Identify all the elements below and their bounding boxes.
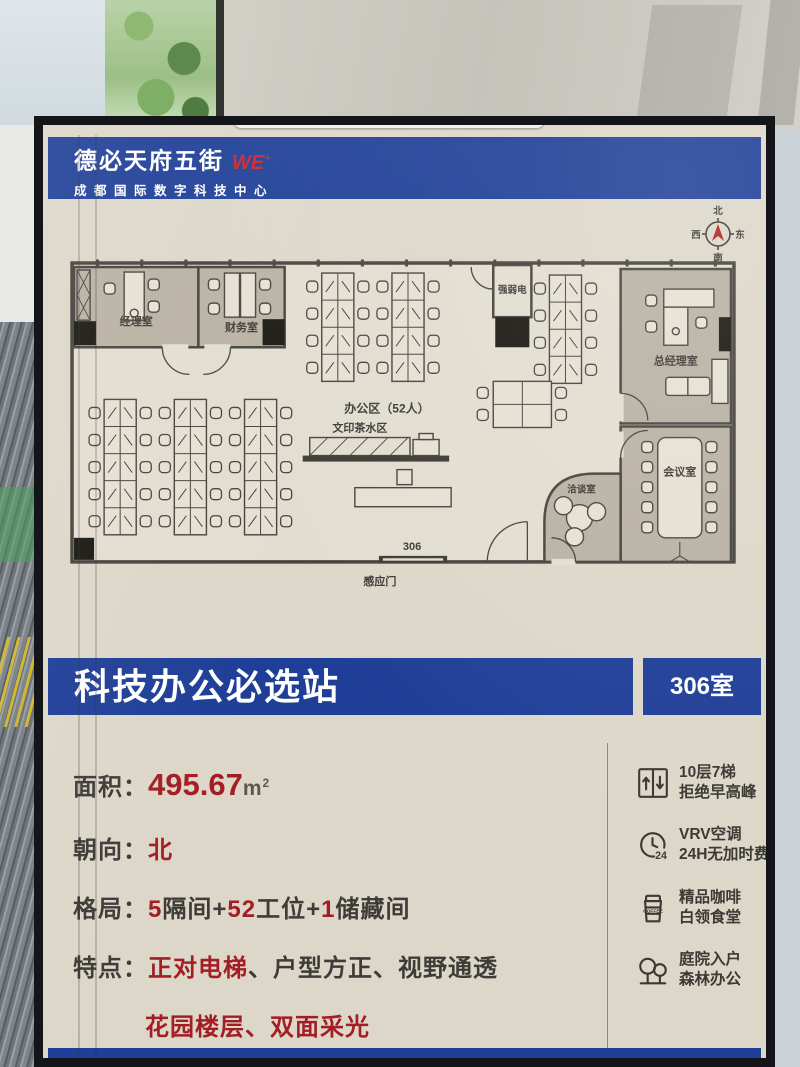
vertical-divider: [607, 743, 608, 1058]
reflection: [757, 0, 800, 125]
layout-label: 格局：: [73, 896, 148, 923]
features-row-2: 花园楼层、双面采光: [145, 1007, 370, 1042]
poster: 德必天府五街WE+ 成都国际数字科技中心 北 西 东 南: [43, 125, 766, 1058]
amenity-text: 森林办公: [679, 970, 741, 990]
carpet-yellow-stripe: [0, 637, 34, 727]
sensor-door-label: 感应门: [363, 574, 396, 588]
compass-icon: 北 西 东 南: [688, 203, 748, 263]
amenity-text: 庭院入户: [679, 950, 741, 970]
brand-mark: WE+: [232, 152, 271, 174]
room-label-manager: 经理室: [120, 314, 153, 328]
room-label-print-tea: 文印茶水区: [332, 421, 387, 435]
window-with-trees: [105, 0, 218, 130]
amenity-text: 24H无加时费: [679, 845, 766, 865]
room-label-negotiation: 洽谈室: [567, 484, 596, 496]
amenity-garden: 庭院入户森林办公: [636, 950, 762, 990]
coffee-icon: COFFEE: [636, 891, 670, 925]
coffee-cup-label: COFFEE: [643, 908, 664, 914]
amenity-text: 白领食堂: [679, 908, 741, 928]
amenity-text: 精品咖啡: [679, 888, 741, 908]
bottom-band: [48, 1048, 761, 1058]
title-band: 科技办公必选站: [48, 658, 633, 715]
wall-pillar: [0, 125, 34, 325]
floor-plan: 经理室 财务室 办公区（52人） 强弱电 总经理室 会议室 洽谈室 文印茶水区 …: [66, 259, 744, 600]
room-number-band: 306室: [643, 658, 761, 715]
room-label-meeting: 会议室: [663, 465, 696, 479]
header-subtitle: 成都国际数字科技中心: [74, 180, 761, 199]
clock-24-icon: 24: [636, 828, 670, 862]
brand-logo: 德必天府五街WE+: [74, 145, 761, 176]
poster-seam: [78, 135, 80, 1058]
room-label-office-area: 办公区（52人）: [344, 400, 429, 415]
orientation-label: 朝向：: [73, 837, 148, 864]
features-label: 特点：: [73, 955, 148, 982]
elevator-icon: [636, 766, 670, 800]
room-number-label: 306: [403, 541, 421, 553]
poster-frame: 德必天府五街WE+ 成都国际数字科技中心 北 西 东 南: [34, 116, 775, 1067]
orientation-row: 朝向：北: [73, 830, 173, 865]
brand-name: 德必天府五街: [74, 148, 224, 174]
window-frame: [216, 0, 224, 130]
amenities-list: 10层7梯拒绝早高峰 24 VRV空调24H无加时费 COFFEE 精品咖啡白领…: [636, 763, 762, 1012]
poster-seam: [95, 135, 97, 1058]
orientation-value: 北: [148, 837, 173, 864]
amenity-text: 拒绝早高峰: [679, 783, 757, 803]
compass-needle: [712, 224, 724, 241]
area-row: 面积：495.67m2: [73, 767, 270, 803]
header-band: 德必天府五街WE+ 成都国际数字科技中心: [48, 137, 761, 199]
amenity-text: 10层7梯: [679, 763, 757, 783]
striped-carpet: [0, 322, 34, 1067]
room-label-finance: 财务室: [224, 320, 258, 334]
area-label: 面积：: [73, 774, 148, 801]
area-unit: m2: [243, 777, 270, 800]
amenity-coffee: COFFEE 精品咖啡白领食堂: [636, 888, 762, 928]
glass-whiteboard: [224, 0, 800, 130]
compass-north-label: 北: [713, 205, 723, 217]
compass-east-label: 东: [735, 229, 745, 241]
trees-icon: [636, 953, 670, 987]
carpet-green-stripe: [0, 487, 34, 562]
room-label-utility: 强弱电: [498, 284, 527, 296]
features-row: 特点：正对电梯、户型方正、视野通透: [73, 948, 498, 983]
layout-row: 格局：5隔间+52工位+1储藏间: [73, 889, 410, 924]
room-label-gm: 总经理室: [654, 353, 698, 367]
amenity-text: VRV空调: [679, 825, 766, 845]
mounting-clip: [233, 125, 545, 128]
compass-west-label: 西: [691, 230, 701, 241]
reflection: [636, 5, 743, 125]
amenity-elevator: 10层7梯拒绝早高峰: [636, 763, 762, 803]
background-wall: [0, 0, 110, 132]
clock-24-label: 24: [655, 850, 667, 862]
area-value: 495.67: [148, 767, 243, 802]
amenity-aircon: 24 VRV空调24H无加时费: [636, 825, 762, 865]
